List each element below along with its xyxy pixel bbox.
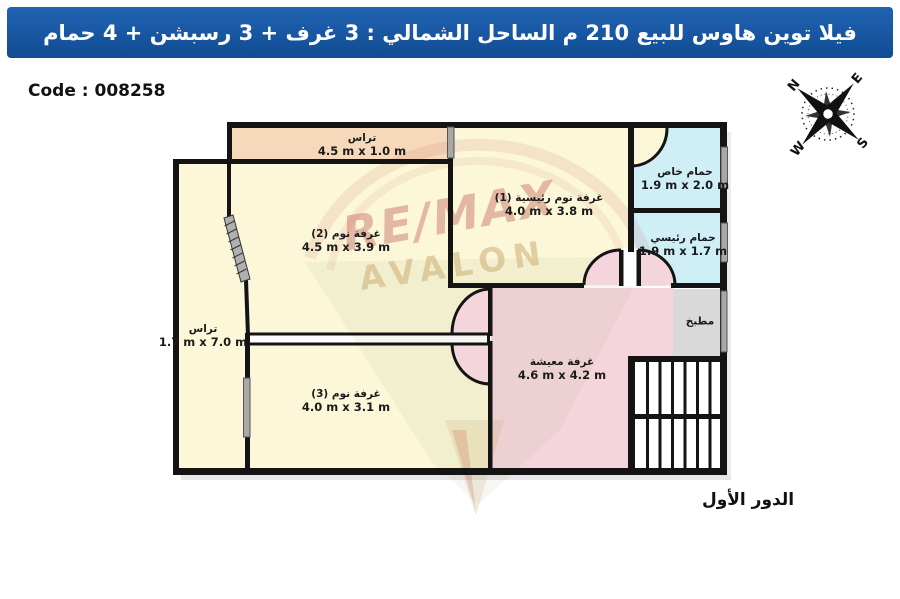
wall-top [227, 122, 726, 128]
room-label-main-bathroom: حمام رئيسي 1.9 m x 1.7 m [639, 232, 727, 258]
compass-label-south: S [854, 135, 872, 152]
wall-bottom [173, 468, 727, 475]
floor-plan-page: فيلا توين هاوس للبيع 210 م الساحل الشمال… [0, 0, 900, 599]
wall-terrace-top-left [227, 122, 232, 164]
room-label-terrace-left: تراس 1.7 m x 7.0 m [159, 323, 247, 349]
wall-bath-divider [628, 208, 727, 213]
window-kitchen [721, 291, 727, 352]
wall-stairs-left [628, 356, 635, 471]
stairs [635, 362, 720, 468]
master-bedroom-door-leaf [619, 250, 624, 286]
wall-terrace-top-bottom [173, 159, 453, 164]
compass-label-west: W [788, 139, 809, 160]
wall-bath-bottom [671, 283, 727, 288]
window-bedroom3-left [244, 378, 251, 437]
room-label-kitchen: مطبخ [686, 316, 715, 329]
compass-rose: N E S W [754, 42, 900, 189]
wall-left [173, 159, 179, 475]
wall-corridor-bottom-line [246, 343, 490, 346]
wall-living-left-upper [488, 286, 493, 336]
room-label-bedroom-3: غرفة نوم (3) 4.0 m x 3.1 m [302, 388, 390, 414]
room-label-bedroom-2: غرفة نوم (2) 4.5 m x 3.9 m [302, 228, 390, 254]
wall-bedroom2-left-upper [227, 159, 231, 217]
window-terrace-top [448, 127, 455, 158]
room-label-living-room: غرفة معيشة 4.6 m x 4.2 m [518, 356, 606, 382]
wall-living-left-lower [488, 341, 493, 472]
room-label-master-bedroom: غرفة نوم رئيسية (1) 4.0 m x 3.8 m [495, 192, 604, 218]
compass-label-east: E [849, 71, 866, 87]
floor-name-label: الدور الأول [702, 490, 794, 510]
room-label-private-bathroom: حمام خاص 1.9 m x 2.0 m [641, 166, 729, 192]
wall-master-bottom [448, 283, 584, 288]
wall-master-right [628, 122, 634, 252]
wall-stairs-top [628, 356, 727, 362]
wall-corridor-top-line [246, 333, 490, 336]
room-label-terrace-top: تراس 4.5 m x 1.0 m [318, 132, 406, 158]
